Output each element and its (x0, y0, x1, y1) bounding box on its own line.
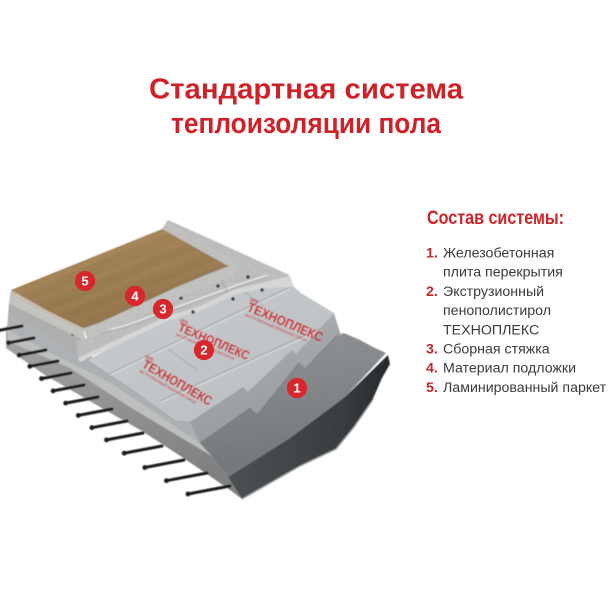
svg-text:2.: 2. (426, 284, 438, 300)
svg-text:Сборная стяжка: Сборная стяжка (443, 342, 550, 358)
svg-text:5.: 5. (426, 380, 438, 396)
svg-text:Материал подложки: Материал подложки (443, 361, 576, 377)
svg-text:Стандартная система: Стандартная система (149, 74, 464, 106)
svg-text:4: 4 (131, 289, 139, 304)
svg-text:5: 5 (81, 274, 88, 289)
svg-text:1: 1 (293, 381, 300, 396)
svg-text:ТЕХНОПЛЕКС: ТЕХНОПЛЕКС (443, 322, 539, 338)
svg-text:3.: 3. (426, 342, 438, 358)
svg-text:2: 2 (200, 343, 207, 358)
svg-text:3: 3 (159, 302, 166, 317)
svg-text:пенополистирол: пенополистирол (443, 303, 551, 319)
svg-text:теплоизоляции пола: теплоизоляции пола (171, 108, 442, 140)
svg-text:плита перекрытия: плита перекрытия (443, 265, 563, 281)
svg-text:Железобетонная: Железобетонная (443, 246, 554, 262)
svg-text:4.: 4. (426, 361, 438, 377)
svg-text:Экструзионный: Экструзионный (443, 284, 544, 300)
svg-text:Ламинированный паркет: Ламинированный паркет (443, 380, 607, 396)
svg-text:1.: 1. (426, 246, 438, 262)
svg-text:Состав системы:: Состав системы: (427, 208, 564, 229)
